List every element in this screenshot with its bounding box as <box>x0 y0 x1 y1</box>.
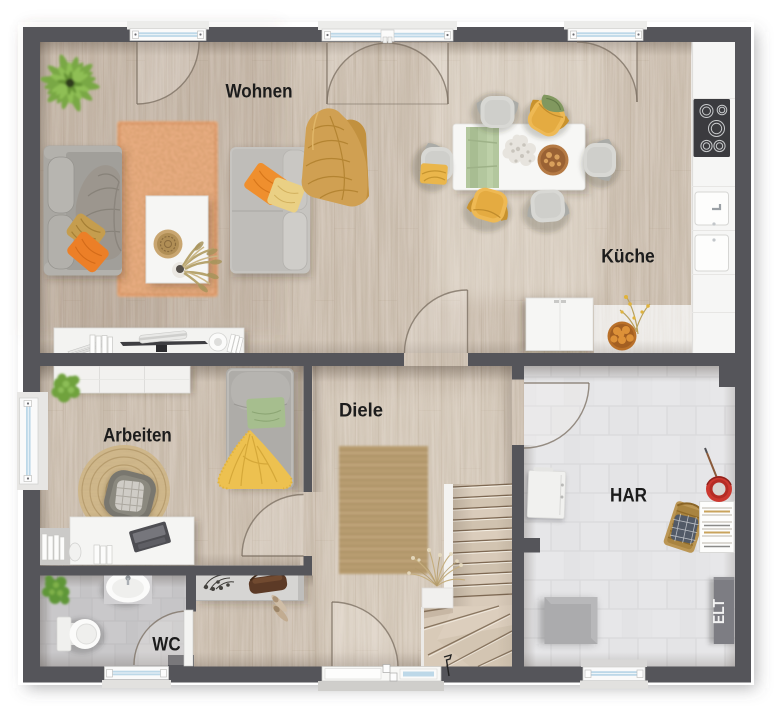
svg-text:HAR: HAR <box>610 486 647 507</box>
svg-text:ELT: ELT <box>711 599 728 624</box>
svg-text:Arbeiten: Arbeiten <box>103 426 172 447</box>
svg-text:Küche: Küche <box>601 246 655 267</box>
svg-text:Diele: Diele <box>339 401 383 422</box>
svg-text:WC: WC <box>152 634 181 655</box>
svg-text:Wohnen: Wohnen <box>226 82 293 103</box>
